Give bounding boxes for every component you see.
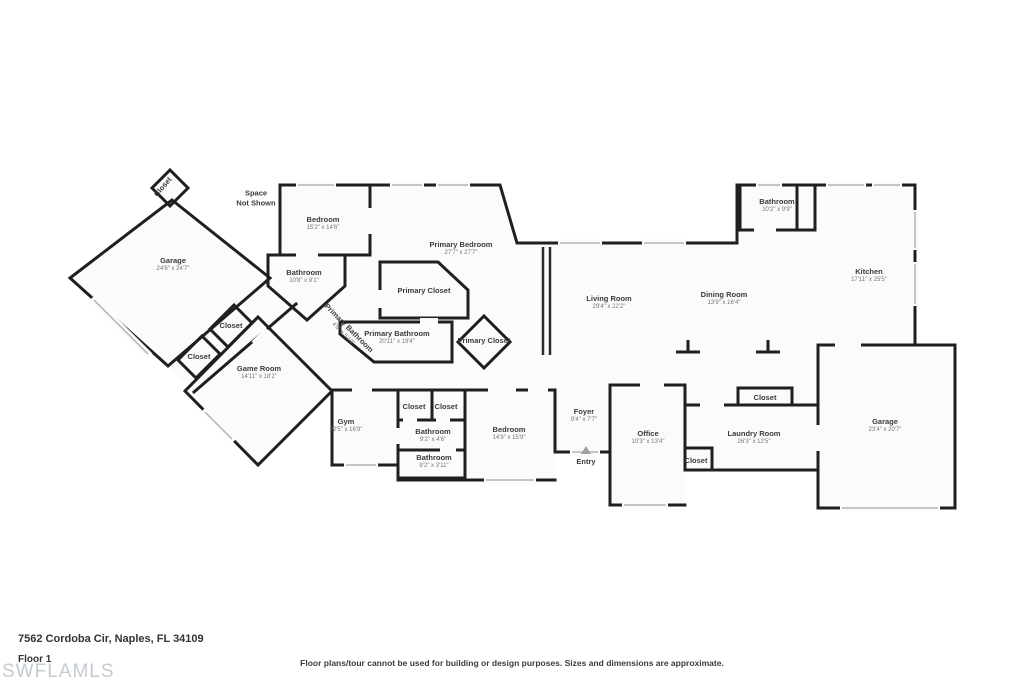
entry-arrow-icon [581, 446, 591, 454]
floor-plan-page: Closet Garage24'8" x 24'7" Space Not Sho… [0, 0, 1024, 682]
floor-fill [70, 170, 955, 508]
address-text: 7562 Cordoba Cir, Naples, FL 34109 [18, 633, 204, 645]
floor-plan-drawing [0, 0, 1024, 682]
disclaimer-text: Floor plans/tour cannot be used for buil… [0, 658, 1024, 668]
